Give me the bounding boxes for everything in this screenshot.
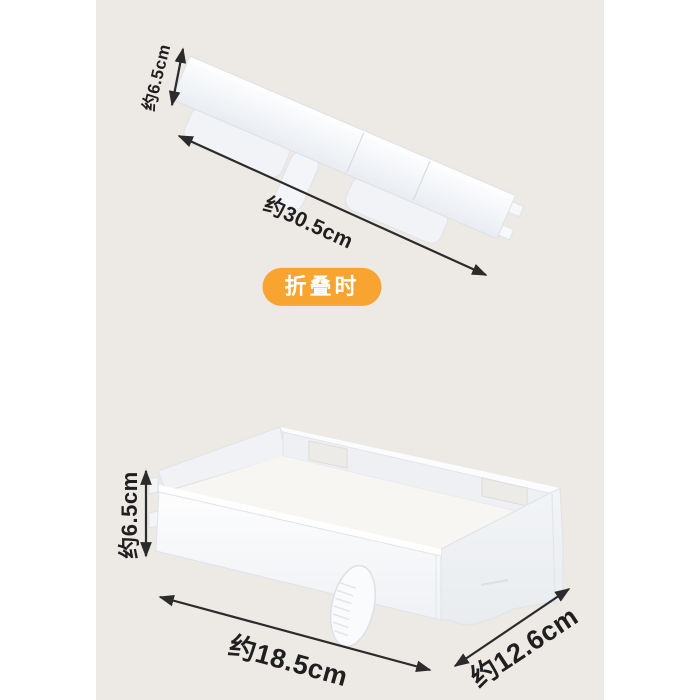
box-left-tab-lower [149, 511, 158, 528]
folded-product-illustration [149, 56, 526, 296]
folded-state-badge: 折叠时 [262, 268, 381, 306]
unfolded-product-illustration [149, 427, 563, 650]
product-dimension-diagram: 约6.5cm 约30.5cm 折叠时 约6.5cm 约18.5cm 约12.6c… [0, 0, 700, 700]
box-left-tab-upper [149, 477, 158, 494]
product-illustrations [0, 0, 700, 700]
unfolded-height-label: 约6.5cm [112, 471, 144, 558]
